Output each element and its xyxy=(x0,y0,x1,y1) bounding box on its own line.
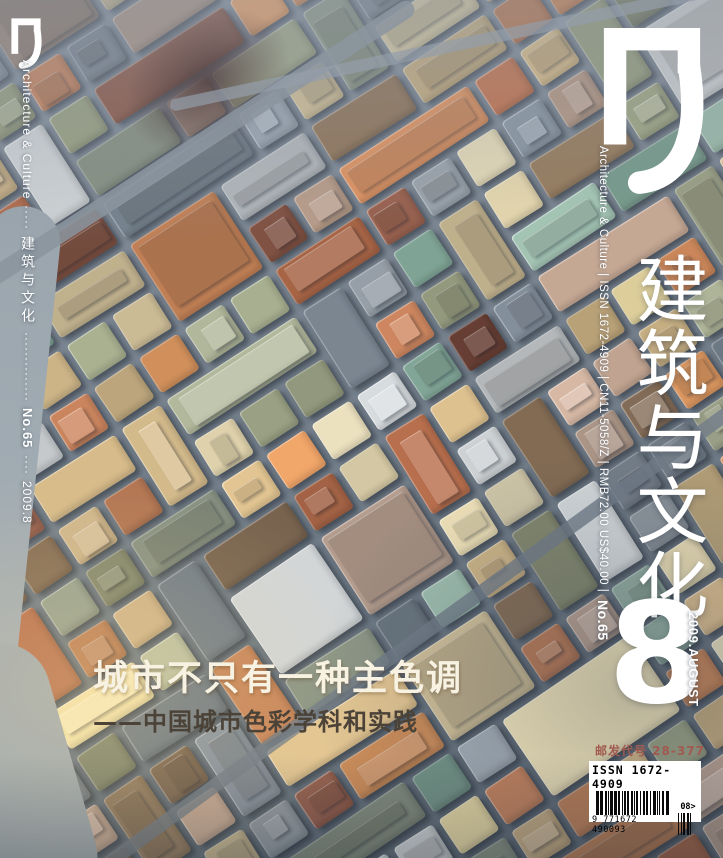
building-roof xyxy=(451,509,487,542)
building-roof xyxy=(76,39,107,67)
issue-meta-vertical: Architecture & Culture | ISSN 1672-4909 … xyxy=(595,146,611,641)
barcode-bar xyxy=(640,791,641,815)
building-roof xyxy=(304,486,336,515)
building-roof xyxy=(361,271,402,309)
building-roof xyxy=(233,477,263,503)
barcode-bar xyxy=(683,813,685,835)
barcode-bar xyxy=(600,791,603,815)
building-roof xyxy=(138,421,192,491)
building-roof xyxy=(413,348,453,386)
building-roof xyxy=(522,821,560,853)
building-roof xyxy=(715,815,723,849)
barcode-row: 9 771672 490093 08> xyxy=(592,791,698,835)
building-roof xyxy=(368,384,408,422)
cover-headline: 城市不只有一种主色调 xyxy=(93,650,463,701)
building-roof xyxy=(402,835,442,858)
issue-date: 2009.AUGUST xyxy=(686,612,700,707)
postal-code: 邮发代号 28-377 xyxy=(595,742,705,759)
building-roof xyxy=(478,855,511,858)
barcode-addon: 08> xyxy=(678,803,698,835)
barcode-bar xyxy=(687,813,689,835)
barcode-bar xyxy=(653,791,656,815)
barcode-main: 9 771672 490093 xyxy=(592,791,674,835)
barcode-bar xyxy=(614,791,617,815)
barcode-bar xyxy=(605,791,607,815)
barcode-panel: ISSN 1672-4909 9 771672 490093 08> xyxy=(589,761,701,822)
spine-text-left: Architecture & Culture·····建筑与文化········… xyxy=(17,60,37,529)
cover-subheadline: ——中国城市色彩学科和实践 xyxy=(93,702,418,737)
issn-label: ISSN 1672-4909 xyxy=(592,763,698,791)
building-roof xyxy=(527,34,571,74)
building-roof xyxy=(463,326,496,358)
building-roof xyxy=(57,407,95,445)
building-roof xyxy=(96,565,126,592)
building-roof xyxy=(163,754,200,793)
barcode-bar xyxy=(618,791,620,815)
barcode-bar xyxy=(681,813,682,835)
barcode-bar xyxy=(690,813,691,835)
building-roof xyxy=(559,382,593,411)
barcode-bar xyxy=(643,791,645,815)
barcode-bar xyxy=(678,813,679,835)
spine-issue-number: No.65 xyxy=(20,408,35,448)
building-roof xyxy=(535,640,562,664)
barcode-bar xyxy=(596,791,599,815)
barcode-bar xyxy=(631,791,633,815)
magazine-title-chinese: 建筑与文化 xyxy=(630,252,702,622)
barcode-bar xyxy=(608,791,609,815)
barcode-addon-label: 08> xyxy=(680,803,695,812)
building-roof xyxy=(307,780,345,814)
barcode-bar xyxy=(610,791,613,815)
barcode-digits: 9 771672 490093 xyxy=(592,815,674,835)
barcode-bar xyxy=(634,791,635,815)
building-roof xyxy=(262,814,288,840)
spine-dots: ····· xyxy=(20,205,34,230)
building-roof xyxy=(506,291,544,330)
building-roof xyxy=(373,201,407,233)
barcode-bar xyxy=(624,791,626,815)
building-roof xyxy=(200,316,236,352)
building-roof xyxy=(465,439,499,473)
building-roof xyxy=(264,216,297,249)
barcode-bar xyxy=(662,791,664,815)
barcode-bar xyxy=(650,791,651,815)
barcode-bar xyxy=(622,791,623,815)
barcode-bar xyxy=(659,791,660,815)
spine-chinese-title: 建筑与文化 xyxy=(19,236,35,326)
building-roof xyxy=(389,313,421,346)
magazine-cover: Architecture & Culture·····建筑与文化········… xyxy=(0,0,723,858)
building-roof xyxy=(362,0,394,6)
issue-meta-line: Architecture & Culture | ISSN 1672-4909 … xyxy=(597,146,609,592)
barcode-bars xyxy=(596,791,670,815)
brand-logo-large-icon xyxy=(596,20,708,211)
spine-dots: ···· xyxy=(20,455,34,475)
barcode-bar xyxy=(636,791,638,815)
barcode-bar xyxy=(646,791,648,815)
barcode-bar xyxy=(666,791,669,815)
building-roof xyxy=(215,837,255,858)
building-roof xyxy=(561,80,593,114)
building-roof xyxy=(72,521,110,558)
building-roof xyxy=(308,189,343,222)
building-roof xyxy=(517,116,548,146)
building-roof xyxy=(209,432,240,466)
spine-dots: ·············· xyxy=(20,332,34,402)
building-roof xyxy=(32,71,69,107)
spine-english: Architecture & Culture xyxy=(20,60,34,199)
barcode-bar xyxy=(657,791,658,815)
barcode-bar xyxy=(627,791,629,815)
barcode-addon-bars xyxy=(678,813,698,835)
building-roof xyxy=(420,170,458,203)
spine-date: 2009.8 xyxy=(20,481,34,524)
building-roof xyxy=(435,283,471,319)
